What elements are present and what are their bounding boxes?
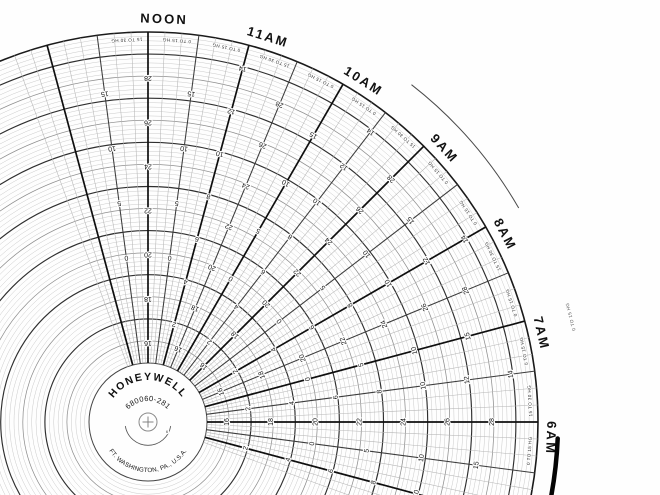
scale-label-C-10: 10 [281, 178, 291, 188]
scale-label-B-20: 20 [144, 251, 152, 258]
scale-label-A-12: 12 [227, 106, 236, 115]
scale-label-A-6: 6 [328, 468, 336, 474]
hour-label-10am: 10AM [341, 63, 386, 99]
scale-label-B-26: 26 [421, 302, 430, 312]
hub-index-arc [125, 426, 170, 445]
scale-label-C-15: 15 [187, 89, 196, 97]
scale-label-B-26: 26 [445, 418, 452, 426]
scale-label-C-0: 0 [309, 441, 316, 446]
scale-label-B-16: 16 [224, 418, 231, 426]
scale-label-C-5: 5 [174, 199, 179, 206]
scale-label-B-24: 24 [144, 162, 152, 169]
scale-label-B-28: 28 [489, 418, 496, 426]
scale-label-A-8: 8 [370, 480, 378, 486]
scale-label-B-28: 28 [461, 285, 470, 295]
circular-chart-svg: 0510151618202224262805101524681012141618… [0, 0, 660, 495]
scale-label-B-18: 18 [144, 295, 152, 302]
scale-label-B-28: 28 [144, 74, 152, 81]
scale-label-B-26: 26 [144, 118, 152, 125]
scale-label-A-6: 6 [333, 395, 340, 400]
scale-label-B-18: 18 [268, 418, 275, 426]
outer-range-text: 0 TO 15 HG [565, 302, 577, 331]
scale-label-B-16: 16 [217, 387, 226, 397]
scale-label-A-10: 10 [312, 196, 323, 206]
hub-footer-text: FT. WASHINGTON, PA., U.S.A. [107, 448, 188, 474]
scale-label-B-16: 16 [144, 339, 152, 346]
hour-label-noon: NOON [140, 10, 188, 27]
scale-label-A-10: 10 [215, 149, 224, 158]
scale-label-A-14: 14 [460, 234, 470, 244]
scale-label-A-12: 12 [339, 161, 350, 171]
scale-label-A-14: 14 [507, 370, 515, 379]
scale-label-C-0: 0 [124, 254, 129, 261]
chart-paper: 0510151618202224262805101524681012141618… [0, 0, 660, 495]
scale-label-C-10: 10 [107, 144, 116, 152]
scale-label-A-4: 4 [289, 401, 296, 406]
scale-label-A-8: 8 [376, 389, 383, 394]
scale-label-A-10: 10 [384, 278, 394, 288]
scale-label-C-10: 10 [418, 454, 426, 463]
scale-label-A-12: 12 [422, 256, 432, 266]
hour-label-9am: 9AM [427, 131, 461, 166]
scale-label-A-2: 2 [242, 445, 250, 451]
chart-hub: HONEYWELL680060-281FT. WASHINGTON, PA., … [106, 371, 190, 474]
scale-label-B-20: 20 [312, 418, 319, 426]
scale-label-C-15: 15 [464, 331, 473, 340]
rim-range-text: 0 TO 15 HG [519, 336, 529, 365]
rim-range-text: 15 TO 30 HG [259, 53, 290, 68]
scale-label-B-24: 24 [401, 418, 408, 426]
scale-label-C-15: 15 [100, 89, 109, 97]
scale-label-C-15: 15 [473, 461, 481, 470]
scale-label-B-20: 20 [298, 353, 307, 363]
scale-label-C-10: 10 [362, 248, 372, 259]
scale-label-A-14: 14 [366, 126, 377, 136]
scale-label-C-0: 0 [304, 376, 312, 382]
scale-label-A-12: 12 [464, 375, 472, 384]
scale-label-A-2: 2 [171, 320, 177, 328]
scale-label-B-22: 22 [144, 207, 152, 214]
scale-label-A-14: 14 [238, 64, 247, 73]
scale-label-B-18: 18 [258, 370, 267, 380]
scale-label-C-5: 5 [358, 362, 366, 368]
scale-label-A-8: 8 [206, 192, 212, 200]
scale-label-A-10: 10 [420, 381, 428, 390]
rim-range-text: 15 TO 30 HG [389, 124, 416, 149]
rim-range-text: 0 TO 15 HG [526, 436, 533, 465]
rim-range-text: 0 TO 15 HG [307, 72, 335, 89]
rim-range-text: 0 TO 15 HG [162, 37, 191, 44]
scale-label-C-5: 5 [364, 448, 371, 453]
hub-chart-number: 680060-281 [124, 394, 173, 411]
scale-label-A-6: 6 [194, 235, 200, 243]
scale-label-C-0: 0 [167, 254, 172, 261]
hour-label-8am: 8AM [491, 216, 520, 253]
scale-label-C-10: 10 [180, 144, 189, 152]
scale-label-C-15: 15 [309, 130, 319, 140]
scale-label-B-22: 22 [357, 418, 364, 426]
hour-label-7am: 7AM [531, 315, 553, 352]
scale-label-C-5: 5 [117, 199, 122, 206]
scale-label-A-2: 2 [245, 406, 252, 411]
scale-label-B-22: 22 [339, 336, 348, 346]
grid-radials [15, 32, 538, 495]
scale-label-B-24: 24 [380, 319, 389, 329]
